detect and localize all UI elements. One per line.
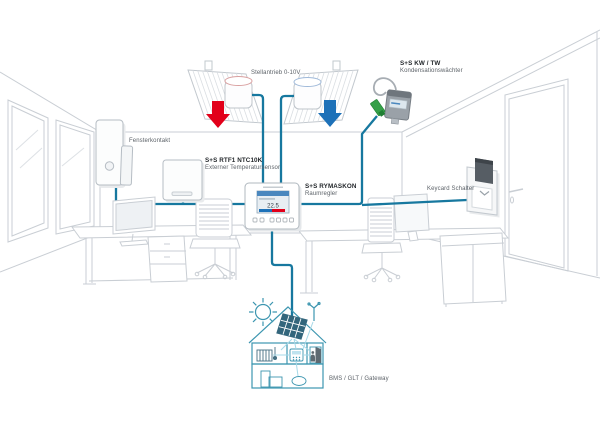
window-contact-device [96, 120, 133, 188]
gateway-label: BMS / GLT / Gateway [329, 376, 389, 384]
radiator-icon [257, 347, 277, 361]
door-keyhole [511, 197, 514, 203]
bus-gateway-drop [272, 226, 292, 316]
controller-name: S+S RYMASKON [305, 183, 357, 191]
room-outline [0, 30, 600, 278]
house-lower-floor [252, 364, 323, 388]
controller-type: Raumregler [305, 191, 357, 199]
keycard-label: Keycard Schalter [427, 186, 474, 194]
screen-temperature-value: 22.5 [267, 204, 279, 210]
temp-sensor-type: Externer Temperatursensor [205, 165, 280, 173]
gateway-house [249, 298, 326, 388]
system-diagram: 22.5 [0, 0, 600, 424]
sensor-plug [370, 99, 386, 118]
room-controller-device: 22.5 [245, 183, 302, 232]
screen-status-line [259, 198, 275, 200]
controller-screen: 22.5 [257, 191, 289, 213]
condensation-label: S+S KW / TW Kondensationswächter [400, 60, 463, 75]
actuator-right [294, 78, 321, 110]
actuator-left [225, 77, 252, 109]
window-contact-label: Fensterkontakt [129, 138, 170, 146]
cabinet-right [440, 233, 506, 307]
door-person-icon [310, 347, 321, 363]
panel-mount-stem [205, 61, 212, 70]
window-contact-magnet [120, 146, 132, 185]
door [505, 79, 568, 271]
door-handle [509, 189, 523, 192]
solar-panel-icon [277, 314, 307, 339]
diagram-scene: 22.5 [0, 0, 600, 424]
boiler-icons [261, 371, 282, 387]
temp-sensor-name: S+S RTF1 NTC10K [205, 157, 280, 165]
thermostat-icon [290, 349, 303, 361]
window-left [8, 100, 48, 242]
actuator-label: Stellantrieb 0-10V [251, 70, 301, 78]
condensation-type: Kondensationswächter [400, 68, 463, 76]
controller-brand-mark [263, 187, 283, 189]
weather-station-icon [308, 303, 320, 322]
condensation-name: S+S KW / TW [400, 60, 463, 68]
gateway-device-icon [292, 377, 306, 386]
temp-sensor-label: S+S RTF1 NTC10K Externer Temperatursenso… [205, 157, 280, 172]
screen-heat-bar [272, 209, 285, 212]
temp-sensor-device [163, 160, 205, 203]
panel-mount-stem [333, 61, 340, 70]
chair-left [190, 199, 240, 279]
window-right [56, 120, 94, 234]
left-wall-edges [0, 72, 100, 272]
controller-label: S+S RYMASKON Raumregler [305, 183, 357, 198]
screen-header-bar [257, 191, 289, 196]
screen-cool-bar [259, 209, 272, 212]
